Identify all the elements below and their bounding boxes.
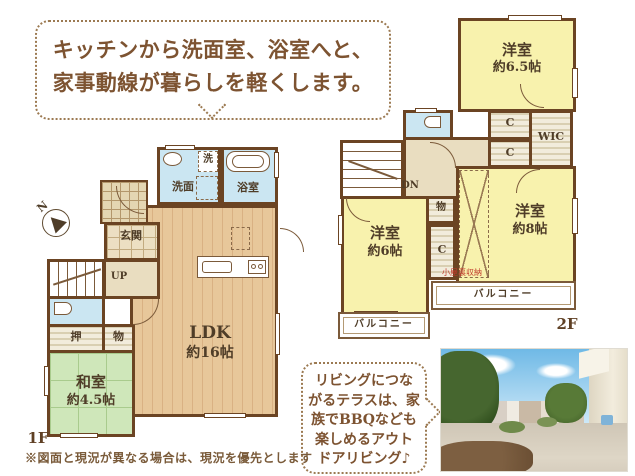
photo-shrub-2 bbox=[537, 417, 557, 427]
genkan-label: 玄関 bbox=[106, 230, 156, 243]
attic-storage-area bbox=[459, 170, 489, 278]
washitsu-size: 約4.5帖 bbox=[52, 394, 130, 409]
disclaimer-text: ※図面と現況が異なる場合は、現況を優先とします bbox=[25, 452, 325, 466]
bathtub-icon bbox=[226, 151, 270, 172]
wic-label: WIC bbox=[531, 131, 571, 144]
bed6-left-window bbox=[338, 215, 343, 245]
oshiire-label: 押 bbox=[49, 331, 103, 344]
stairs-1f bbox=[47, 259, 105, 299]
attic-note: 小屋裏収納 bbox=[436, 268, 488, 277]
bed65-top-window bbox=[508, 15, 562, 21]
floor2-label: 2F bbox=[552, 316, 582, 333]
bed65-name: 洋室 bbox=[468, 42, 566, 59]
toilet-icon-2f bbox=[424, 116, 441, 128]
bed65-right-window bbox=[572, 68, 578, 98]
toilet-icon-1f bbox=[54, 302, 72, 315]
terrace-line3: 族でBBQなども bbox=[303, 411, 425, 431]
photo-cloud-2 bbox=[536, 363, 576, 379]
photo-bucket bbox=[601, 415, 613, 425]
dn-label: DN bbox=[396, 180, 424, 192]
closet-c-top-label: C bbox=[490, 117, 530, 130]
washbasin-icon bbox=[163, 152, 182, 166]
terrace-line4: 楽しめるアウト bbox=[303, 431, 425, 451]
kitchen-sink-icon bbox=[202, 261, 232, 273]
washitsu-left-window bbox=[44, 366, 49, 396]
room-ldk-size: 約16帖 bbox=[160, 345, 260, 361]
washitsu-name: 和室 bbox=[52, 374, 130, 391]
toilet2f-window bbox=[415, 108, 437, 113]
bed6-size: 約6帖 bbox=[347, 245, 423, 260]
balcony-small-label: バルコニー bbox=[344, 319, 424, 331]
bath-window bbox=[274, 152, 279, 178]
fridge-space-box bbox=[231, 227, 250, 250]
stairs-2f bbox=[340, 140, 404, 199]
mono-1f-label: 物 bbox=[104, 331, 133, 344]
bed65-size: 約6.5帖 bbox=[468, 61, 566, 76]
senmen-window bbox=[165, 145, 195, 150]
linen-space-box bbox=[196, 176, 218, 200]
closet-c-mid-label: C bbox=[430, 244, 454, 257]
bed8-size: 約8帖 bbox=[490, 223, 570, 238]
terrace-photo bbox=[440, 348, 628, 472]
balcony-main-label: バルコニー bbox=[461, 289, 546, 301]
bath-label: 浴室 bbox=[226, 182, 270, 195]
photo-mulch-ground bbox=[440, 441, 533, 472]
room-ldk-name: LDK bbox=[160, 324, 260, 344]
closet-c-bottom-label: C bbox=[490, 147, 530, 160]
ldk-right-window bbox=[275, 313, 280, 355]
stove-icon bbox=[248, 260, 266, 274]
ldk-door-arc bbox=[280, 228, 304, 252]
floor1-label: 1F bbox=[24, 430, 52, 447]
bed8-right-window bbox=[572, 198, 578, 234]
terrace-line2: がるテラスは、家 bbox=[303, 392, 425, 412]
up-label: UP bbox=[104, 271, 134, 283]
washer-label: 洗 bbox=[200, 154, 216, 166]
floorplan-flyer: キッチンから洗面室、浴室へと、 家事動線が暮らしを軽くします。 N LDK 約1… bbox=[0, 0, 635, 476]
ldk-bottom-window bbox=[204, 413, 246, 418]
photo-shrub bbox=[499, 421, 525, 433]
washitsu-bottom-window bbox=[60, 433, 98, 438]
speech-bubble-kitchen-line1: キッチンから洗面室、浴室へと、 bbox=[37, 34, 389, 67]
bed6-name: 洋室 bbox=[347, 225, 423, 242]
compass-icon: N bbox=[40, 205, 74, 239]
terrace-line1: リビングにつな bbox=[303, 372, 425, 392]
mono-2f-label: 物 bbox=[428, 202, 454, 214]
bed8-name: 洋室 bbox=[490, 203, 570, 220]
